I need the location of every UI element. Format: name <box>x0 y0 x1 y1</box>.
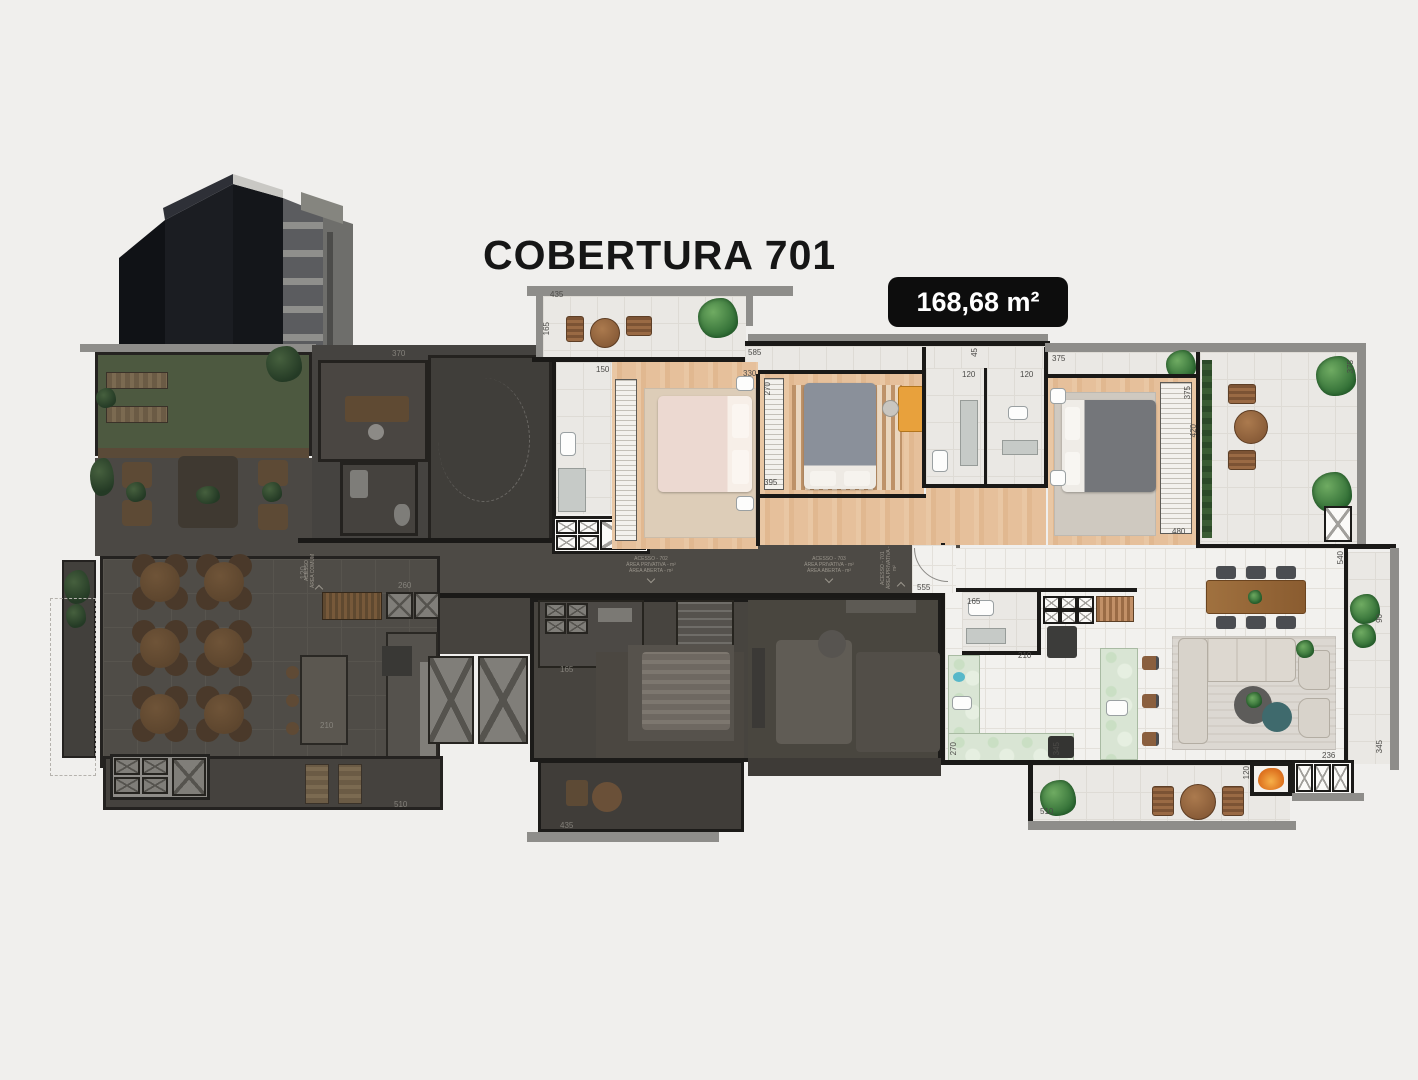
access-label: ACESSO - 702ÁREA PRIVATIVA - m²ÁREA ABER… <box>596 556 706 582</box>
access-label: ACESSOÁREA COMUM <box>304 548 322 594</box>
floor-plan: 4351655854515033027039512012037537542048… <box>0 0 1418 1080</box>
floorplan-page: COBERTURA 701 168,68 m² <box>0 0 1418 1080</box>
chevron-down-icon <box>897 582 905 590</box>
access-label: ACESSO - 703ÁREA PRIVATIVA - m²ÁREA ABER… <box>774 556 884 582</box>
chevron-down-icon <box>825 575 833 583</box>
chevron-down-icon <box>647 575 655 583</box>
access-label: ACESSO - 701ÁREA PRIVATIVA - m² <box>880 545 904 591</box>
access-labels-layer: ACESSOÁREA COMUMACESSO - 702ÁREA PRIVATI… <box>0 0 1418 1080</box>
chevron-down-icon <box>315 585 323 593</box>
